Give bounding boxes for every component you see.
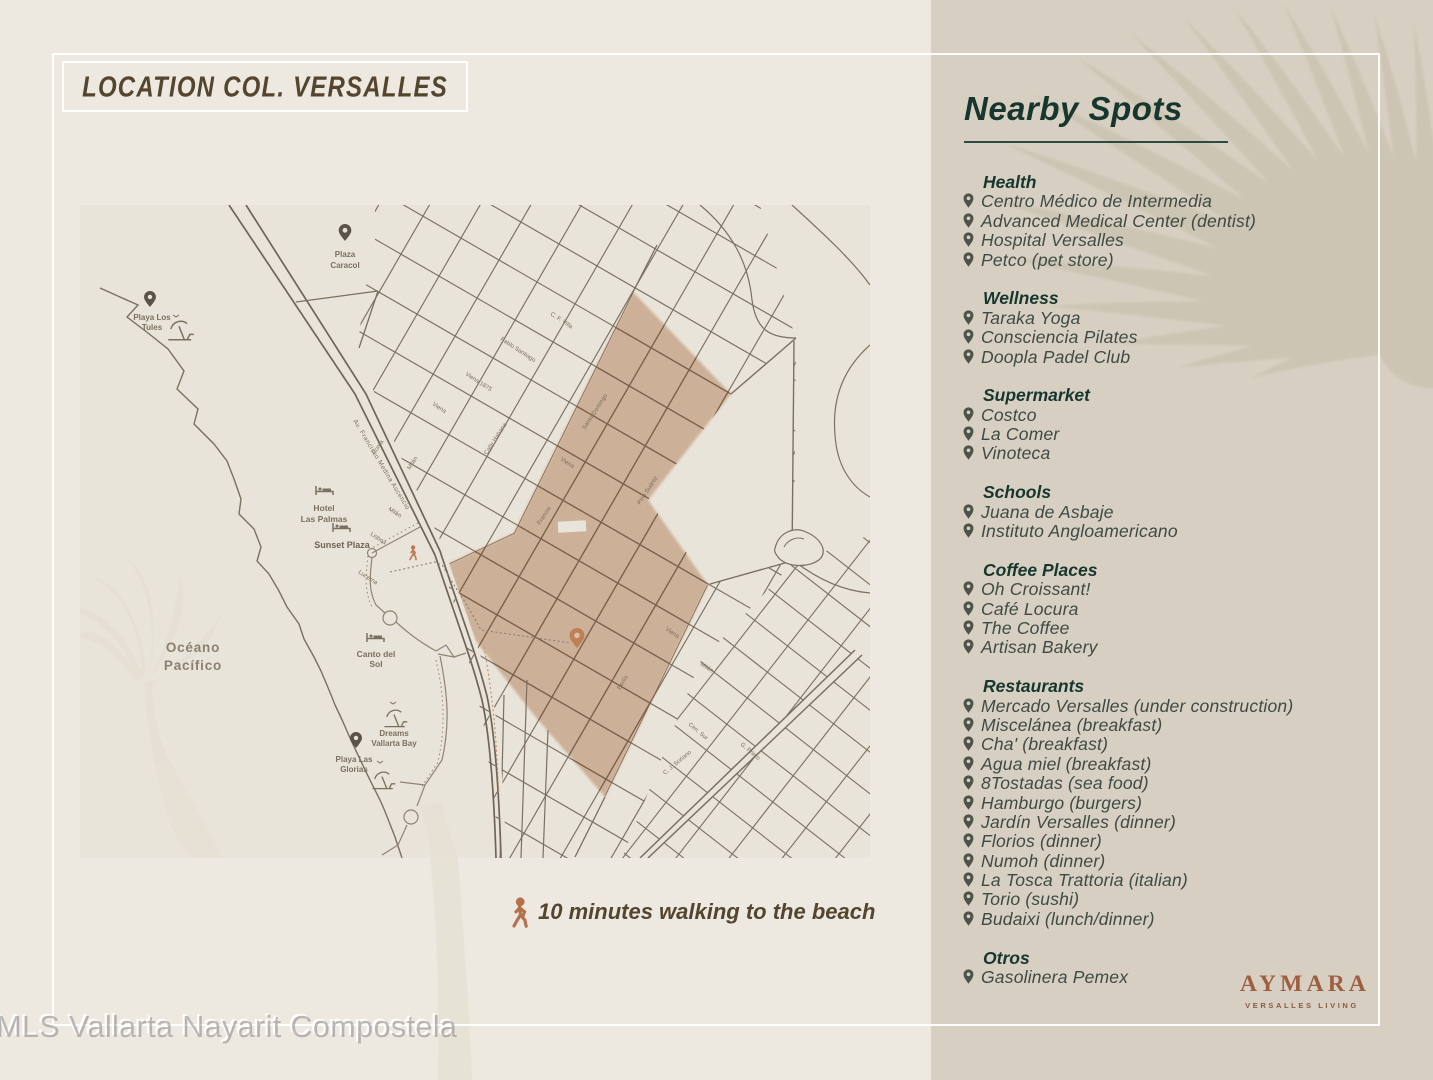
svg-text:Dreams: Dreams xyxy=(379,729,409,738)
svg-text:Playa Los: Playa Los xyxy=(133,313,171,322)
svg-text:Las Palmas: Las Palmas xyxy=(301,514,348,524)
svg-text:Canto del: Canto del xyxy=(357,649,396,659)
svg-text:Plaza: Plaza xyxy=(335,250,356,259)
svg-text:Océano: Océano xyxy=(166,640,220,655)
svg-text:Glorias: Glorias xyxy=(340,765,368,774)
svg-text:Hotel: Hotel xyxy=(313,503,334,513)
svg-text:Caracol: Caracol xyxy=(330,261,359,270)
svg-text:Playa Las: Playa Las xyxy=(336,755,373,764)
svg-text:Sunset Plaza: Sunset Plaza xyxy=(314,540,371,550)
svg-text:Vallarta Bay: Vallarta Bay xyxy=(371,739,417,748)
svg-text:Pacífico: Pacífico xyxy=(164,658,222,673)
svg-text:Sol: Sol xyxy=(369,659,382,669)
svg-text:Tules: Tules xyxy=(142,323,163,332)
